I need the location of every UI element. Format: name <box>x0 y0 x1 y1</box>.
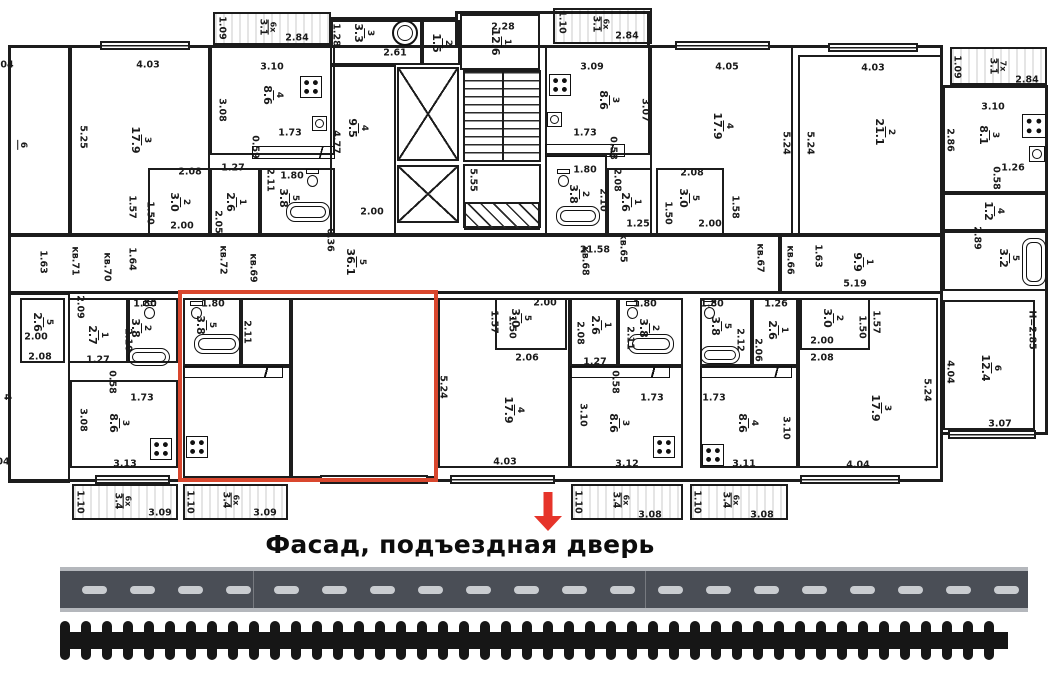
room-number: 6 <box>991 363 1001 373</box>
dimension-label: 4.03 <box>861 63 884 74</box>
road-dash-marking <box>130 586 155 594</box>
road-dash-marking <box>802 586 827 594</box>
wc-icon <box>557 169 570 187</box>
dimension-label: 3.08 <box>750 510 773 521</box>
dimension-label: 2.84 <box>1015 75 1038 86</box>
road-dash-marking <box>370 586 395 594</box>
dimension-label: кв.71 <box>70 246 81 275</box>
dimension-label: 2.05 <box>213 210 224 233</box>
dimension-label: 4.77 <box>331 130 342 153</box>
dimension-label: 2.89 <box>972 226 983 249</box>
dimension-label: 1.50 <box>507 315 518 338</box>
room-area: 3.4 <box>112 493 122 510</box>
room-number: 1 <box>98 330 108 340</box>
elevator-shaft-icon <box>397 67 459 161</box>
room-area: 3.4 <box>720 492 730 509</box>
dimension-label: 1.10 <box>573 490 584 513</box>
dimension-label: 3.13 <box>113 459 136 470</box>
room-label: 536.1 <box>344 248 366 275</box>
dimension-label: 1.50 <box>857 315 868 338</box>
room-area: 21.1 <box>873 118 885 145</box>
room-label: 12.6 <box>224 192 246 212</box>
room-area: 8.6 <box>107 413 119 433</box>
room-area: 8.6 <box>607 413 619 433</box>
dimension-label: 2.11 <box>265 168 276 191</box>
room-area: 12.6 <box>489 28 501 55</box>
room-area: 17.9 <box>502 396 514 423</box>
room-area: 2.6 <box>619 192 631 212</box>
room-area: 8.6 <box>261 85 273 105</box>
road-seam <box>645 571 646 608</box>
room-label: 6 <box>17 140 27 150</box>
stair-divider <box>502 72 504 160</box>
dimension-label: 0.59 <box>250 135 261 158</box>
road-dash-marking <box>850 586 875 594</box>
dimension-label: 2.61 <box>383 48 406 59</box>
dimension-label: 1.09 <box>217 16 228 39</box>
room-number: 4 <box>723 121 733 131</box>
down-arrow-icon <box>533 492 563 532</box>
dimension-label: 3.10 <box>781 416 792 439</box>
room-number: 2 <box>579 189 589 199</box>
dimension-label: 1.73 <box>278 128 301 139</box>
road-dash-marking <box>658 586 683 594</box>
dimension-label: 1.73 <box>640 393 663 404</box>
room-label: 12.6 <box>589 315 611 335</box>
dimension-label: 1.09 <box>952 55 963 78</box>
dimension-label: 2.84 <box>615 31 638 42</box>
dimension-label: 2.06 <box>515 353 538 364</box>
room-number: 5 <box>521 313 531 323</box>
room-number: 1 <box>601 320 611 330</box>
dimension-label: 3.10 <box>260 62 283 73</box>
dimension-label: 1.64 <box>127 247 138 270</box>
room-number: 1 <box>236 196 246 206</box>
dimension-label: 1.80 <box>573 165 596 176</box>
room-label: 6x3.4 <box>112 493 131 510</box>
dimension-label: 5.19 <box>843 279 866 290</box>
road-dash-marking <box>274 586 299 594</box>
counter-icon <box>700 366 792 378</box>
room-area: 8.1 <box>977 125 989 145</box>
room-number: 4 <box>273 90 283 100</box>
room-area: 17.9 <box>711 112 723 139</box>
dimension-label: 2.09 <box>75 295 86 318</box>
dimension-label: 1.58 <box>730 195 741 218</box>
dimension-label: 2.00 <box>360 207 383 218</box>
room-area: 9.5 <box>346 118 358 138</box>
sink-icon <box>1029 146 1045 162</box>
room-label: 12.6 <box>619 192 641 212</box>
room-area: 2.6 <box>224 192 236 212</box>
room-number: 3 <box>989 130 999 140</box>
dimension-label: 5.25 <box>78 125 89 148</box>
dimension-label: 1.27 <box>86 355 109 366</box>
dimension-label: 4.04 <box>945 360 956 383</box>
room-area: 3.1 <box>987 58 997 75</box>
dimension-label: 3.09 <box>580 62 603 73</box>
dimension-label: 0.58 <box>991 166 1002 189</box>
room-area: 36.1 <box>344 248 356 275</box>
dimension-label: 3.10 <box>578 403 589 426</box>
dimension-label: 3.08 <box>638 510 661 521</box>
dimension-label: 0.58 <box>610 370 621 393</box>
dimension-label: 1.50 <box>663 201 674 224</box>
dimension-label: 1.63 <box>38 250 49 273</box>
room-area: 3.0 <box>168 192 180 212</box>
dimension-label: 2.12 <box>735 328 746 351</box>
room-area: 2.6 <box>589 315 601 335</box>
dimension-label: 1.73 <box>573 128 596 139</box>
dimension-label: 1.10 <box>692 490 703 513</box>
room-number: 5 <box>721 321 731 331</box>
room-label: 6x3.4 <box>720 492 739 509</box>
room-number: 5 <box>356 257 366 267</box>
room-area: 3.4 <box>610 492 620 509</box>
road-dash-marking <box>610 586 635 594</box>
room-number: 4 <box>514 405 524 415</box>
sink-icon <box>547 112 562 127</box>
room-number: 6x <box>730 493 739 508</box>
tub-icon <box>1022 238 1046 286</box>
room-label: 33.3 <box>352 23 374 43</box>
room-number: 2 <box>141 323 151 333</box>
arrow-head <box>534 516 562 531</box>
road-dash-marking <box>994 586 1019 594</box>
tub-icon <box>286 202 330 222</box>
room-label: 19.9 <box>851 252 873 272</box>
stove-icon <box>150 438 172 460</box>
dimension-label: кв.72 <box>218 245 229 274</box>
elevator-shaft-icon <box>397 165 459 223</box>
room-number: 3 <box>619 418 629 428</box>
dimension-label: 5.24 <box>781 131 792 154</box>
dimension-label: 2.08 <box>28 352 51 363</box>
tub-icon <box>128 348 170 366</box>
room-label: 6x3.1 <box>257 19 276 36</box>
dimension-label: 0.58 <box>107 370 118 393</box>
road <box>60 567 1028 612</box>
room-area: 17.9 <box>129 126 141 153</box>
dimension-label: 1.50 <box>145 201 156 224</box>
road-dash-marking <box>514 586 539 594</box>
room-number: 3 <box>881 403 891 413</box>
road-dash-marking <box>226 586 251 594</box>
room-label: 6x3.4 <box>220 492 239 509</box>
dimension-label: кв.65 <box>618 233 629 262</box>
room-number: 1 <box>501 37 511 47</box>
road-dash-marking <box>82 586 107 594</box>
room-number: 6x <box>620 493 629 508</box>
room-label: 23.8 <box>567 184 589 204</box>
room-area: 3.8 <box>567 184 579 204</box>
room-number: 1 <box>863 257 873 267</box>
room-number: 2 <box>649 323 659 333</box>
highlight-box <box>178 290 438 482</box>
dimension-label: 1.73 <box>130 393 153 404</box>
room-number: 1 <box>630 196 640 206</box>
dimension-label: 5.24 <box>805 131 816 154</box>
stove-icon <box>549 74 571 96</box>
dimension-label: 0.58 <box>608 136 619 159</box>
room-number: 4 <box>358 123 368 133</box>
room-label: 417.9 <box>711 112 733 139</box>
dimension-label: 1.27 <box>583 357 606 368</box>
dimension-label: 4.03 <box>136 60 159 71</box>
wc-icon <box>306 169 319 187</box>
dimension-label: 3.12 <box>615 459 638 470</box>
dimension-label: 1.10 <box>185 490 196 513</box>
dimension-label: 2.08 <box>612 168 623 191</box>
dimension-label: 2.00 <box>810 336 833 347</box>
dimension-label: 04 <box>0 60 13 71</box>
window <box>800 475 900 484</box>
room-area: 2.6 <box>766 320 778 340</box>
dimension-label: 1.80 <box>700 299 723 310</box>
room-number: 3 <box>141 135 151 145</box>
floor-plan: 6317.948.623.012.653.833.321.549.5112.63… <box>0 0 1054 560</box>
room-number: 6x <box>600 17 609 32</box>
room-label: 38.1 <box>977 125 999 145</box>
dimension-label: 3.09 <box>148 508 171 519</box>
room-area: 3.3 <box>352 23 364 43</box>
dimension-label: 2.08 <box>680 168 703 179</box>
room-label: 221.1 <box>873 118 895 145</box>
stove-icon <box>1022 114 1046 138</box>
dimension-label: 3.11 <box>732 459 755 470</box>
dimension-label: 2.00 <box>698 219 721 230</box>
room-label: 53.2 <box>997 248 1019 268</box>
dimension-label: 3.09 <box>253 508 276 519</box>
dimension-label: 1.57 <box>127 195 138 218</box>
staircase-icon <box>463 70 541 162</box>
dimension-label: 2.08 <box>178 167 201 178</box>
room-label: 112.6 <box>489 28 511 55</box>
dimension-label: кв.66 <box>785 245 796 274</box>
room-label: 6x3.4 <box>610 492 629 509</box>
dimension-label: 2.11 <box>625 326 636 349</box>
room-number: 2 <box>180 196 190 206</box>
dimension-label: 04 <box>0 457 10 468</box>
window <box>675 41 770 50</box>
room-area: 12.4 <box>979 354 991 381</box>
dimension-label: 4.03 <box>493 457 516 468</box>
dimension-label: кв.70 <box>102 252 113 281</box>
room-number: 3 <box>119 418 129 428</box>
window <box>95 475 170 484</box>
dimension-label: 1.73 <box>702 393 725 404</box>
room-number: 5 <box>1009 253 1019 263</box>
room-number: 3 <box>364 28 374 38</box>
room-number: 3 <box>609 95 619 105</box>
dimension-label: кв.67 <box>755 243 766 272</box>
dimension-label: 1.10 <box>557 10 568 33</box>
dimension-label: 1.26 <box>764 299 787 310</box>
road-dash-marking <box>946 586 971 594</box>
railway-rail <box>60 632 1008 649</box>
dimension-label: кв.68 <box>580 246 591 275</box>
dimension-label: 4.05 <box>715 62 738 73</box>
dimension-label: 3.08 <box>217 98 228 121</box>
dimension-label: 2.08 <box>575 321 586 344</box>
road-dash-marking <box>466 586 491 594</box>
dimension-label: 1.10 <box>75 490 86 513</box>
counter-icon <box>252 146 335 159</box>
room <box>798 55 943 235</box>
road-dash-marking <box>898 586 923 594</box>
room-area: 9.9 <box>851 252 863 272</box>
dimension-label: 2.00 <box>24 332 47 343</box>
room-label: 417.9 <box>502 396 524 423</box>
window <box>450 475 555 484</box>
sink-icon <box>312 116 327 131</box>
dimension-label: 2.06 <box>753 338 764 361</box>
dimension-label: 2.84 <box>285 33 308 44</box>
window <box>828 43 918 52</box>
room-area: 3.1 <box>590 16 600 33</box>
road-surface <box>60 571 1028 608</box>
room-area: 2.6 <box>31 312 43 332</box>
room-area: 1.2 <box>982 201 994 221</box>
dimension-label: 1.80 <box>280 171 303 182</box>
stove-icon <box>702 444 724 466</box>
dimension-label: 1.57 <box>489 310 500 333</box>
road-dash-marking <box>754 586 779 594</box>
road-dash-marking <box>178 586 203 594</box>
room-label: 317.9 <box>869 394 891 421</box>
window <box>948 430 1036 439</box>
facade-caption: Фасад, подъездная дверь <box>160 530 760 559</box>
dimension-label: 2.10 <box>598 188 609 211</box>
room-area: 2.7 <box>86 325 98 345</box>
stove-icon <box>300 76 322 98</box>
room-number: 7x <box>997 59 1006 74</box>
room-area: 17.9 <box>869 394 881 421</box>
dimension-label: 5.55 <box>468 168 479 191</box>
dimension-label: 2.00 <box>533 298 556 309</box>
room-label: 38.6 <box>597 90 619 110</box>
dimension-label: 2.08 <box>810 353 833 364</box>
dimension-label: 2.00 <box>170 221 193 232</box>
room-area: 3.4 <box>220 492 230 509</box>
dimension-label: 1.26 <box>1001 163 1024 174</box>
dimension-label: 4 <box>2 394 13 401</box>
railway-track <box>60 621 1008 660</box>
room-number: 5 <box>43 317 53 327</box>
road-seam <box>253 571 254 608</box>
dimension-label: 4.04 <box>846 460 869 471</box>
room-label: 48.6 <box>736 413 758 433</box>
room-label: 48.6 <box>261 85 283 105</box>
under-stair-storage <box>464 202 540 230</box>
road-dash-marking <box>322 586 347 594</box>
dimension-label: 5.24 <box>922 378 933 401</box>
room-label: 23.0 <box>168 192 190 212</box>
room <box>8 235 780 293</box>
room-label: 38.6 <box>107 413 129 433</box>
dimension-label: 2.10 <box>123 328 134 351</box>
room-area: 3.1 <box>257 19 267 36</box>
road-dash-marking <box>706 586 731 594</box>
arrow-stem <box>544 492 553 517</box>
dimension-label: 1.25 <box>626 219 649 230</box>
room-number: 6x <box>267 20 276 35</box>
room-area: 8.6 <box>597 90 609 110</box>
dimension-label: 2.86 <box>945 128 956 151</box>
room-number: 4 <box>748 418 758 428</box>
room-number: 6x <box>122 494 131 509</box>
room-number: 2 <box>885 127 895 137</box>
room-label: 612.4 <box>979 354 1001 381</box>
dimension-label: 1.27 <box>221 163 244 174</box>
room-number: 6x <box>230 493 239 508</box>
room-area: 3.8 <box>709 316 721 336</box>
dimension-label: 3.07 <box>640 98 651 121</box>
room-label: 41.2 <box>982 201 1004 221</box>
road-dash-marking <box>562 586 587 594</box>
dimension-label: 1.28 <box>331 23 342 46</box>
dimension-label: 2.28 <box>491 22 514 33</box>
dimension-label: 1.80 <box>633 299 656 310</box>
dimension-label: 0.36 <box>325 228 336 251</box>
room-label: 317.9 <box>129 126 151 153</box>
dimension-label: 3.08 <box>78 408 89 431</box>
window <box>100 41 190 50</box>
stove-icon <box>653 436 675 458</box>
dimension-label: кв.69 <box>248 253 259 282</box>
room-label: 52.6 <box>31 312 53 332</box>
tub-icon <box>556 206 600 226</box>
room-label: 12.7 <box>86 325 108 345</box>
dimension-label: 5.24 <box>438 375 449 398</box>
room-area: 3.2 <box>997 248 1009 268</box>
room-number: 6 <box>17 140 27 150</box>
room-label: 49.5 <box>346 118 368 138</box>
room-label: 21.5 <box>430 33 452 53</box>
room-label: 38.6 <box>607 413 629 433</box>
room-number: 4 <box>994 206 1004 216</box>
dimension-label: 3.10 <box>981 102 1004 113</box>
dimension-label: 1.63 <box>813 244 824 267</box>
page: 6317.948.623.012.653.833.321.549.5112.63… <box>0 0 1054 678</box>
dimension-label: 3.07 <box>988 419 1011 430</box>
room-label: 53.8 <box>709 316 731 336</box>
circ-icon <box>392 20 418 46</box>
room-number: 1 <box>778 325 788 335</box>
room-area: 8.6 <box>736 413 748 433</box>
room-label: 12.6 <box>766 320 788 340</box>
room-label: 6x3.1 <box>590 16 609 33</box>
room <box>798 298 938 468</box>
road-dash-marking <box>418 586 443 594</box>
room-label: 7x3.1 <box>987 58 1006 75</box>
dimension-label: 1.80 <box>133 299 156 310</box>
room-area: 1.5 <box>430 33 442 53</box>
room-number: 2 <box>442 37 452 47</box>
dimension-label: 1.57 <box>871 310 882 333</box>
dimension-label: Н=2.85 <box>1027 310 1038 349</box>
